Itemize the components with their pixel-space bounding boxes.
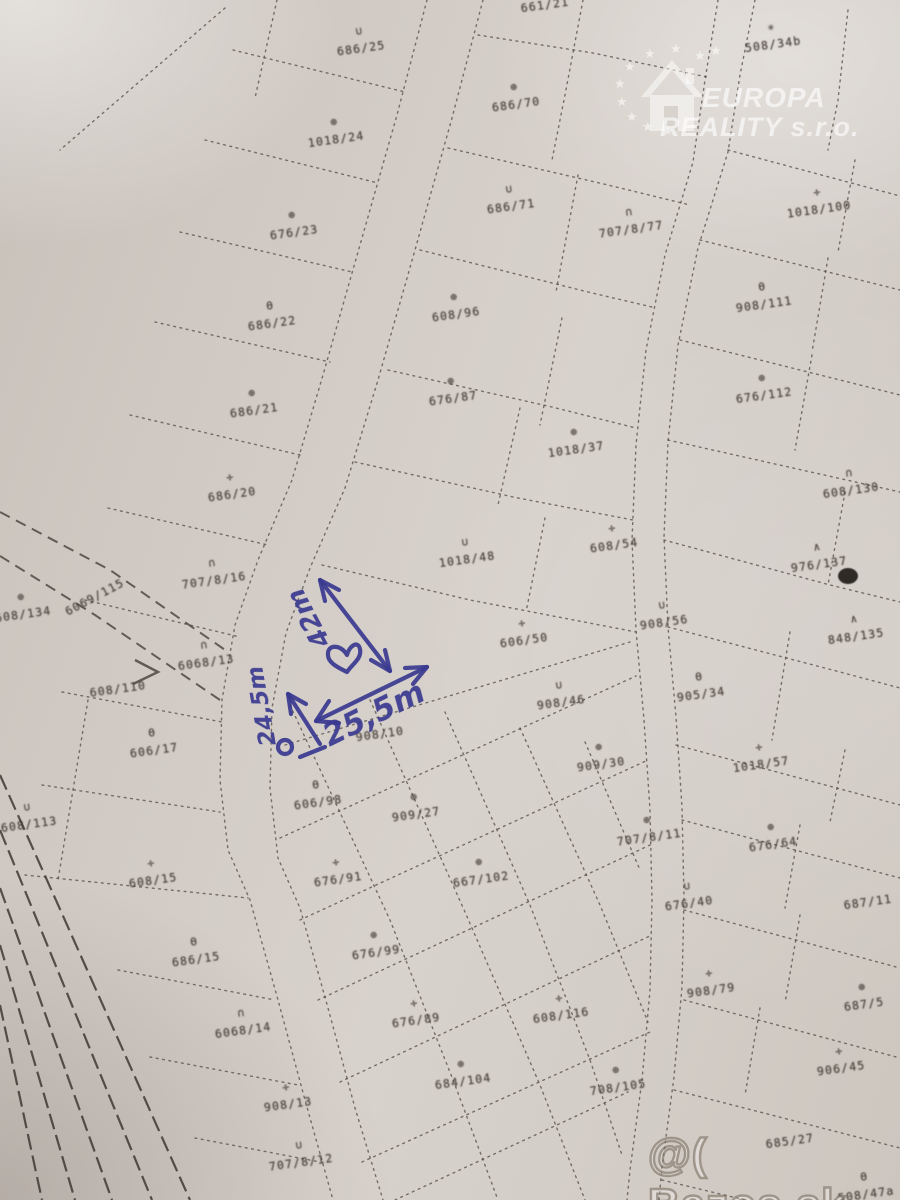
parcel-number: 684/104 — [434, 1072, 492, 1091]
parcel-label: ✛676/89 — [389, 994, 441, 1030]
parcel-number: 1018/24 — [307, 130, 365, 149]
parcel-label: 687/11 — [843, 894, 893, 912]
parcel-culture-symbol: ∪ — [658, 599, 666, 611]
heart-doodle — [328, 645, 360, 672]
parcel-number: 6068/14 — [214, 1021, 272, 1040]
parcel-number: 687/11 — [843, 894, 893, 912]
parcel-culture-symbol: ϴ — [266, 300, 274, 312]
parcel-label: ✛1018/57 — [730, 738, 790, 775]
parcel-culture-symbol: ✛ — [410, 997, 418, 1009]
parcel-label: ⊕608/134 — [0, 588, 52, 625]
parcel-label: ⊕676/112 — [733, 369, 793, 406]
parcel-culture-symbol: ✛ — [332, 856, 340, 868]
parcel-label: ⊕667/102 — [450, 853, 510, 890]
parcel-culture-symbol: ⊕ — [248, 387, 256, 399]
dimension-arrow-left — [288, 694, 320, 744]
cadastral-map-photo: ∪686/25661/21✳508/34b⊕1018/24⊕686/70⊕676… — [0, 0, 900, 1200]
parcel-number: 707/8/77 — [598, 220, 664, 240]
parcel-culture-symbol: ⊕ — [457, 1058, 465, 1070]
parcel-culture-symbol: ∪ — [23, 801, 31, 813]
parcel-number: 608/130 — [822, 481, 880, 500]
parcel-label: ϴ606/17 — [127, 724, 179, 760]
parcel-label: ⊕707/8/11 — [614, 810, 682, 848]
parcel-culture-symbol: ⊕ — [447, 375, 455, 387]
parcel-culture-symbol: ∩ — [237, 1007, 245, 1019]
parcel-label: ∩6068/14 — [212, 1004, 272, 1041]
parcel-culture-symbol: ✛ — [555, 992, 563, 1004]
parcel-culture-symbol: ϴ — [312, 779, 320, 791]
parcel-culture-symbol: ∩ — [845, 467, 853, 479]
parcel-number: 608/113 — [0, 815, 58, 834]
parcel-label: ϴ908/111 — [733, 278, 793, 315]
parcel-culture-symbol: ✳ — [767, 21, 775, 33]
parcel-number: 686/21 — [229, 402, 279, 420]
parcel-label: ⊕676/87 — [426, 372, 478, 408]
parcel-culture-symbol: ∪ — [461, 536, 469, 548]
parcel-culture-symbol: ✛ — [282, 1081, 290, 1093]
parcel-label: ϴ905/34 — [674, 668, 726, 704]
handwritten-length-long: 42m — [281, 583, 337, 653]
parcel-label: ⊕708/105 — [587, 1061, 647, 1098]
parcel-label: 661/21 — [520, 0, 570, 15]
parcel-culture-symbol: ✛ — [518, 617, 526, 629]
parcel-culture-symbol: ϴ — [695, 671, 703, 683]
parcel-number: 676/40 — [664, 895, 714, 913]
svg-text:★: ★ — [710, 44, 722, 59]
handwritten-length-bottom: 25,5m — [317, 674, 431, 754]
handwritten-annotation — [0, 0, 900, 1200]
parcel-number: 1018/100 — [786, 200, 852, 220]
parcel-culture-symbol: ∧ — [813, 541, 821, 553]
svg-text:★: ★ — [624, 60, 636, 75]
parcel-label: ✛676/91 — [311, 853, 363, 889]
parcel-number: 676/89 — [391, 1012, 441, 1030]
parcel-label: ∩608/130 — [820, 464, 880, 501]
parcel-label: ⊕684/104 — [432, 1055, 492, 1092]
handwritten-length-left: 24,5m — [242, 664, 282, 748]
parcel-label: ∪686/71 — [484, 180, 536, 216]
parcel-label: ∩6068/13 — [175, 636, 235, 673]
parcel-label: ✛608/15 — [126, 854, 178, 890]
parcel-number: 708/105 — [589, 1078, 647, 1097]
parcel-label: ✛608/116 — [530, 989, 590, 1026]
parcel-culture-symbol: ⊕ — [410, 791, 418, 803]
parcel-label: ✛908/79 — [684, 964, 736, 1000]
parcel-culture-symbol: ∪ — [295, 1139, 303, 1151]
parcel-culture-symbol: ∧ — [850, 613, 858, 625]
parcel-culture-symbol: ∪ — [355, 25, 363, 37]
svg-text:★: ★ — [626, 110, 638, 125]
svg-text:★: ★ — [642, 120, 654, 135]
parcel-culture-symbol: ∪ — [683, 880, 691, 892]
parcel-number: 848/135 — [827, 627, 885, 646]
parcel-label: ✛686/20 — [205, 468, 257, 504]
parcel-culture-symbol: ⊕ — [475, 856, 483, 868]
parcel-label: 6069/115 — [64, 577, 127, 618]
parcel-boundary-lines — [0, 0, 900, 1200]
parcel-number: 906/45 — [816, 1060, 866, 1078]
parcel-label: ⊕686/21 — [227, 384, 279, 420]
parcel-label: ∪908/46 — [534, 676, 586, 712]
parcel-label: ⊕909/27 — [389, 788, 441, 824]
parcel-culture-symbol: ⊕ — [595, 741, 603, 753]
parcel-label: ∩707/8/16 — [179, 553, 247, 591]
parcel-label: ∪908/56 — [637, 596, 689, 632]
parcel-culture-symbol: ⊕ — [643, 814, 651, 826]
parcel-label: ∧976/137 — [788, 538, 848, 575]
parcel-culture-symbol: ⊕ — [450, 291, 458, 303]
parcel-number: 686/22 — [247, 315, 297, 333]
parcel-culture-symbol: ⊕ — [858, 981, 866, 993]
parcel-number: 909/27 — [391, 806, 441, 824]
parcel-culture-symbol: ∪ — [505, 183, 513, 195]
parcel-culture-symbol: ϴ — [148, 727, 156, 739]
parcel-number: 608/15 — [128, 872, 178, 890]
parcel-label: ∪676/40 — [662, 877, 714, 913]
parcel-number: 908/56 — [639, 614, 689, 632]
parcel-culture-symbol: ⊕ — [767, 821, 775, 833]
parcel-number: 908/13 — [263, 1096, 313, 1114]
parcel-number: 1018/57 — [732, 755, 790, 774]
parcel-culture-symbol: ✛ — [813, 186, 821, 198]
parcel-number: 1018/37 — [547, 440, 605, 459]
parcel-number: 707/8/16 — [181, 571, 247, 591]
parcel-number: 608/116 — [532, 1006, 590, 1025]
parcel-culture-symbol: ⊕ — [330, 116, 338, 128]
parcel-culture-symbol: ✛ — [705, 967, 713, 979]
parcel-culture-symbol: ✛ — [226, 471, 234, 483]
parcel-label: ∩707/8/77 — [596, 202, 664, 240]
parcel-number: 676/64 — [748, 836, 798, 854]
parcel-culture-symbol: ⊕ — [612, 1064, 620, 1076]
parcel-number: 905/34 — [676, 686, 726, 704]
parcel-number: 686/20 — [207, 486, 257, 504]
parcel-number: 608/54 — [589, 537, 639, 555]
parcel-number: 686/25 — [336, 40, 386, 58]
parcel-culture-symbol: ∩ — [625, 206, 633, 218]
parcel-number: 908/111 — [735, 295, 793, 314]
parcel-label: ✛908/13 — [261, 1078, 313, 1114]
parcel-label: ⊕686/70 — [489, 78, 541, 114]
svg-text:★: ★ — [694, 49, 706, 64]
parcel-culture-symbol: ⊕ — [288, 209, 296, 221]
parcel-number: 676/112 — [735, 386, 793, 405]
parcel-culture-symbol: ϴ — [190, 936, 198, 948]
svg-text:★: ★ — [670, 42, 682, 57]
watermark-line2: REALITY s.r.o. — [660, 112, 860, 143]
parcel-culture-symbol: ✛ — [147, 857, 155, 869]
parcel-number: 676/23 — [269, 224, 319, 242]
parcel-culture-symbol: ✛ — [835, 1045, 843, 1057]
parcel-number: 608/110 — [89, 680, 147, 699]
road-lines — [0, 775, 190, 1200]
parcel-number: 606/98 — [293, 794, 343, 812]
parcel-label: ⊕608/96 — [429, 288, 481, 324]
parcel-number: 608/134 — [0, 605, 52, 624]
svg-text:★: ★ — [614, 77, 626, 92]
parcel-label: ϴ606/98 — [291, 776, 343, 812]
parcel-number: 608/96 — [431, 306, 481, 324]
watermark-bazos: @( Bazos.sk — [648, 1130, 900, 1200]
parcel-culture-symbol: ⊕ — [570, 426, 578, 438]
parcel-label: ✛606/50 — [497, 614, 549, 650]
parcel-number: 1018/48 — [438, 550, 496, 569]
parcel-culture-symbol: ⊕ — [758, 372, 766, 384]
parcel-number: 707/8/12 — [268, 1153, 334, 1173]
parcel-number: 606/50 — [499, 632, 549, 650]
ink-dot — [838, 568, 858, 584]
svg-text:★: ★ — [644, 47, 656, 62]
parcel-number: 909/30 — [576, 756, 626, 774]
parcel-number: 606/17 — [129, 742, 179, 760]
parcel-number: 686/71 — [486, 198, 536, 216]
parcel-number: 687/5 — [843, 996, 885, 1013]
parcel-label: ⊕1018/37 — [545, 423, 605, 460]
parcel-label: ∪608/113 — [0, 798, 58, 835]
parcel-label: ⊕687/5 — [841, 979, 885, 1014]
parcel-culture-symbol: ✛ — [608, 522, 616, 534]
parcel-culture-symbol: ∪ — [555, 679, 563, 691]
parcel-number: 676/91 — [313, 871, 363, 889]
parcel-label: ∧848/135 — [825, 610, 885, 647]
parcel-label: ⊕676/99 — [349, 926, 401, 962]
parcel-label: ⊕909/30 — [574, 738, 626, 774]
parcel-culture-symbol: ⊕ — [510, 81, 518, 93]
parcel-label: ⊕1018/24 — [305, 113, 365, 150]
parcel-number: 686/15 — [171, 951, 221, 969]
parcel-culture-symbol: ∩ — [208, 557, 216, 569]
parcel-number: 676/87 — [428, 390, 478, 408]
parcel-number: 676/99 — [351, 944, 401, 962]
parcel-number: 6069/115 — [64, 577, 127, 618]
parcel-label: ∪1018/48 — [436, 533, 496, 570]
parcel-culture-symbol: ⊕ — [370, 929, 378, 941]
parcel-label: ϴ686/15 — [169, 933, 221, 969]
parcel-number: 908/79 — [686, 982, 736, 1000]
parcel-culture-symbol: ϴ — [758, 281, 766, 293]
parcel-label: ∪707/8/12 — [266, 1135, 334, 1173]
parcel-label: ⊕676/64 — [746, 818, 798, 854]
parcel-label: 608/110 — [89, 680, 147, 699]
parcel-label: ⊕676/23 — [267, 206, 319, 242]
parcel-culture-symbol: ✛ — [755, 741, 763, 753]
parcel-label: ∪686/25 — [334, 22, 386, 58]
parcel-number: 6068/13 — [177, 653, 235, 672]
watermark-line1: EUROPA — [702, 82, 826, 114]
parcel-label: ✛608/54 — [587, 519, 639, 555]
parcel-number: 686/70 — [491, 96, 541, 114]
parcel-culture-symbol: ⊕ — [17, 591, 25, 603]
parcel-number: 908/46 — [536, 694, 586, 712]
parcel-label: ϴ686/22 — [245, 297, 297, 333]
watermark-europa-reality: ★★★ ★★★ ★★★ ★ EUROPA REALITY s.r.o. — [598, 38, 900, 163]
parcel-label: ✛906/45 — [814, 1042, 866, 1078]
parcel-number: 707/8/11 — [616, 828, 682, 848]
parcel-number: 661/21 — [520, 0, 570, 15]
parcel-number: 667/102 — [452, 870, 510, 889]
parcel-label: ✛1018/100 — [784, 182, 852, 220]
svg-text:★: ★ — [616, 95, 628, 110]
parcel-culture-symbol: ∩ — [200, 639, 208, 651]
